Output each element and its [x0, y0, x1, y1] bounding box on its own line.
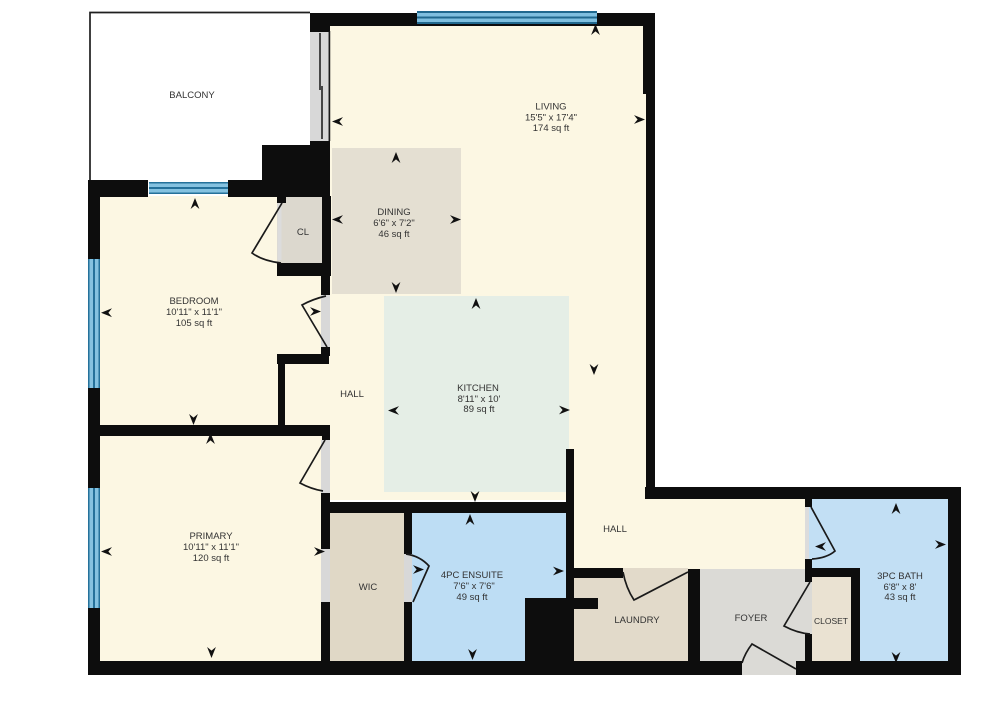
svg-text:4PC ENSUITE: 4PC ENSUITE: [441, 570, 503, 581]
svg-text:BALCONY: BALCONY: [169, 90, 215, 101]
svg-text:89 sq ft: 89 sq ft: [463, 404, 495, 415]
svg-text:HALL: HALL: [603, 524, 627, 535]
svg-text:174 sq ft: 174 sq ft: [533, 123, 570, 134]
svg-text:CL: CL: [297, 227, 309, 238]
svg-text:3PC BATH: 3PC BATH: [877, 571, 923, 582]
svg-text:46 sq ft: 46 sq ft: [378, 229, 410, 240]
svg-text:CLOSET: CLOSET: [814, 616, 848, 626]
svg-text:FOYER: FOYER: [735, 613, 768, 624]
svg-text:BEDROOM: BEDROOM: [169, 296, 218, 307]
svg-text:43 sq ft: 43 sq ft: [884, 592, 916, 603]
svg-text:LAUNDRY: LAUNDRY: [614, 615, 660, 626]
svg-text:HALL: HALL: [340, 389, 364, 400]
svg-text:DINING: DINING: [377, 207, 410, 218]
svg-text:49 sq ft: 49 sq ft: [456, 592, 488, 603]
svg-text:10'11" x 11'1": 10'11" x 11'1": [166, 307, 222, 318]
svg-text:7'6" x 7'6": 7'6" x 7'6": [453, 581, 495, 592]
svg-text:LIVING: LIVING: [535, 102, 566, 113]
svg-text:KITCHEN: KITCHEN: [457, 383, 499, 394]
svg-text:10'11" x 11'1": 10'11" x 11'1": [183, 542, 239, 553]
svg-text:PRIMARY: PRIMARY: [189, 531, 233, 542]
svg-text:15'5" x 17'4": 15'5" x 17'4": [525, 113, 577, 124]
svg-text:120 sq ft: 120 sq ft: [193, 553, 230, 564]
svg-text:105 sq ft: 105 sq ft: [176, 318, 213, 329]
svg-text:6'6" x 7'2": 6'6" x 7'2": [373, 218, 415, 229]
svg-text:WIC: WIC: [359, 582, 378, 593]
